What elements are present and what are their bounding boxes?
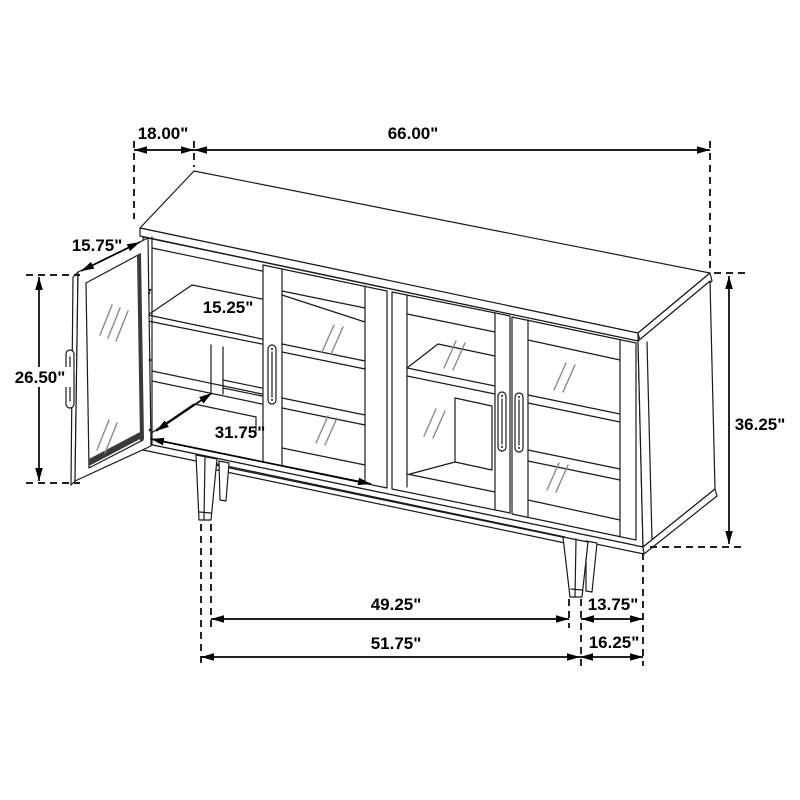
dimension-diagram-canvas: 18.00" 66.00" 15.75" 26.50" 15.25" 31.75… — [0, 0, 800, 800]
handle-screw — [518, 447, 520, 449]
dimension-door-height: 26.50" — [10, 275, 80, 483]
dimension-label-side-leg-span: 13.75" — [588, 595, 639, 614]
hinge-dot — [149, 429, 152, 432]
back-left-leg — [219, 461, 229, 501]
dimension-label-front-leg-span: 49.25" — [371, 595, 422, 614]
door2-panel — [392, 292, 510, 513]
dimension-label-front-base-span: 51.75" — [371, 634, 422, 653]
dimension-shelf-depth: 15.25" — [203, 298, 254, 317]
door3-handle — [515, 393, 523, 452]
dimension-label-top-depth: 18.00" — [138, 124, 189, 143]
handle-screw — [501, 395, 503, 397]
door1-handle — [268, 345, 276, 404]
handle-screw — [518, 396, 520, 398]
glass-door-left-center — [263, 265, 387, 488]
glass-door-center — [392, 292, 510, 513]
hinge-dot — [149, 359, 152, 362]
dimension-label-side-base-span: 16.25" — [589, 633, 640, 652]
glass-door-right — [512, 317, 636, 540]
door2-handle — [498, 392, 506, 451]
handle-screw — [271, 399, 273, 401]
sideboard-dimension-drawing: 18.00" 66.00" 15.75" 26.50" 15.25" 31.75… — [0, 0, 800, 800]
dimension-label-door-height: 26.50" — [15, 368, 66, 387]
dimension-label-interior-width: 31.75" — [215, 423, 266, 442]
handle-screw — [501, 446, 503, 448]
front-left-leg — [196, 455, 217, 520]
dimension-label-top-width: 66.00" — [388, 124, 439, 143]
dimension-label-shelf-depth: 15.25" — [203, 298, 254, 317]
dimension-label-overall-height: 36.25" — [735, 415, 786, 434]
hinge-dot — [149, 289, 152, 292]
dimension-label-door-width: 15.75" — [72, 236, 123, 255]
handle-screw — [271, 348, 273, 350]
